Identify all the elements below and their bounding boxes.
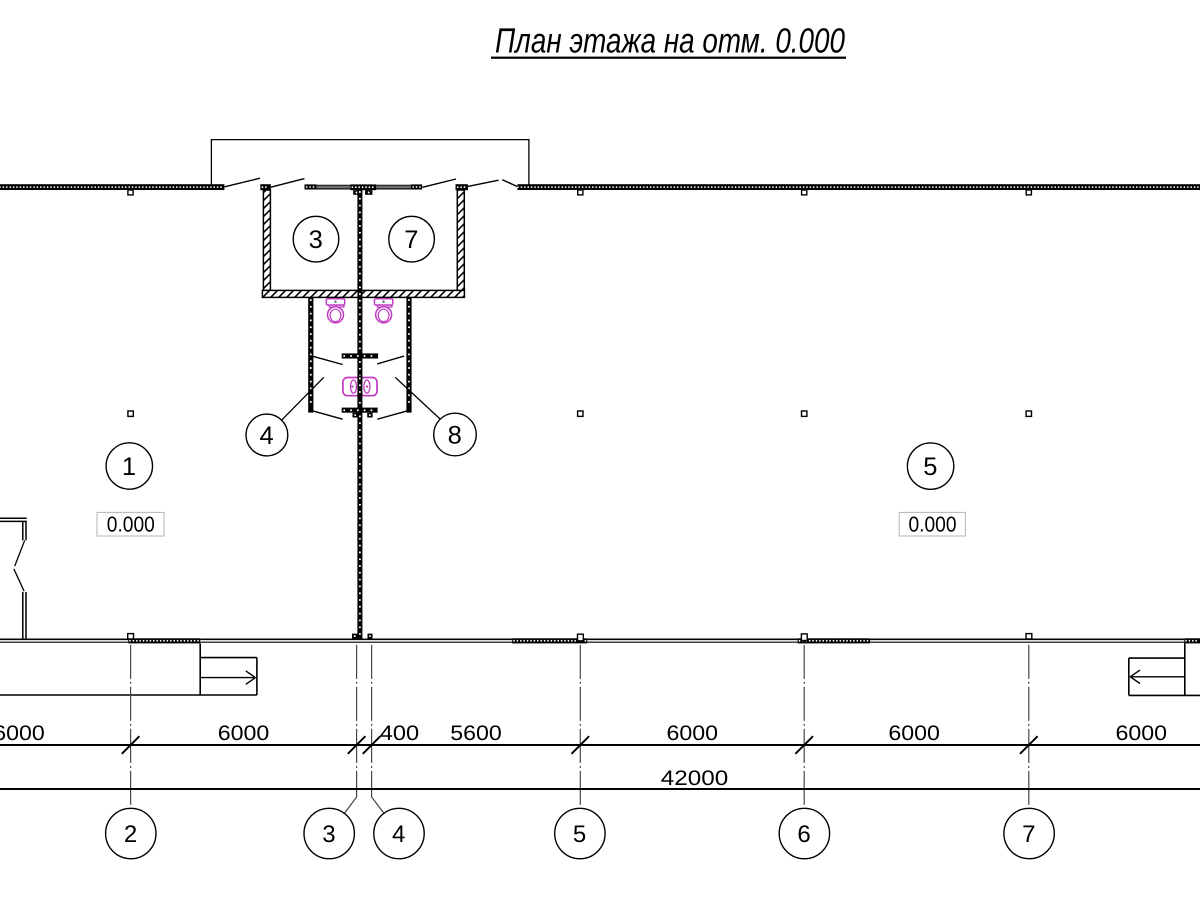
svg-text:7: 7 bbox=[1022, 821, 1035, 848]
svg-text:6000: 6000 bbox=[218, 722, 270, 745]
svg-text:3: 3 bbox=[322, 821, 335, 848]
svg-text:0.000: 0.000 bbox=[909, 513, 957, 537]
svg-text:6000: 6000 bbox=[1116, 722, 1168, 745]
svg-text:7: 7 bbox=[404, 226, 418, 254]
svg-text:План этажа на отм. 0.000: План этажа на отм. 0.000 bbox=[495, 22, 845, 61]
svg-text:400: 400 bbox=[380, 722, 419, 745]
svg-text:2: 2 bbox=[124, 821, 137, 848]
svg-text:5600: 5600 bbox=[450, 722, 502, 745]
svg-text:4: 4 bbox=[260, 422, 274, 450]
svg-text:5: 5 bbox=[923, 453, 937, 481]
svg-text:3: 3 bbox=[309, 226, 323, 254]
svg-text:4: 4 bbox=[392, 821, 405, 848]
svg-text:6000: 6000 bbox=[667, 722, 719, 745]
svg-text:6000: 6000 bbox=[0, 722, 45, 745]
svg-text:1: 1 bbox=[122, 453, 136, 481]
svg-text:5: 5 bbox=[573, 821, 586, 848]
svg-text:42000: 42000 bbox=[661, 767, 728, 790]
svg-text:6: 6 bbox=[797, 821, 810, 848]
svg-text:6000: 6000 bbox=[888, 722, 940, 745]
svg-text:0.000: 0.000 bbox=[107, 513, 155, 537]
svg-text:8: 8 bbox=[448, 421, 462, 449]
